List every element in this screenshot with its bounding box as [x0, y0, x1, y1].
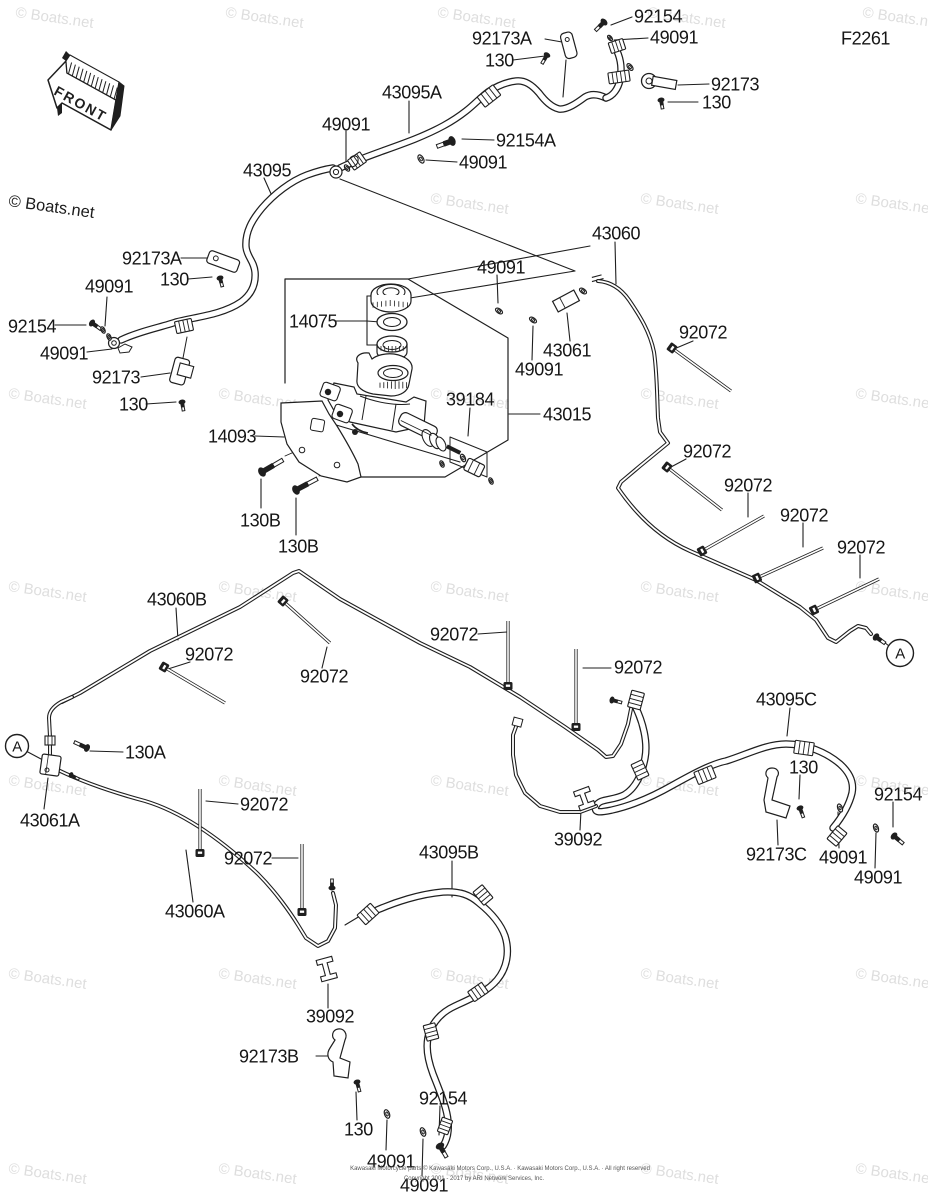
svg-text:43060: 43060	[592, 224, 640, 244]
svg-text:130B: 130B	[240, 511, 281, 531]
svg-text:© Boats.net: © Boats.net	[854, 1160, 928, 1188]
svg-text:43095C: 43095C	[756, 690, 817, 710]
svg-text:© Boats.net: © Boats.net	[7, 578, 88, 606]
svg-text:© Boats.net: © Boats.net	[639, 190, 720, 218]
svg-text:92072: 92072	[240, 795, 288, 815]
svg-text:© Boats.net: © Boats.net	[7, 965, 88, 993]
svg-text:© Boats.net: © Boats.net	[14, 4, 95, 32]
svg-text:130: 130	[702, 93, 731, 113]
svg-text:92154: 92154	[634, 7, 682, 27]
svg-text:14093: 14093	[208, 427, 256, 447]
svg-text:130: 130	[160, 270, 189, 290]
svg-text:49091: 49091	[459, 153, 507, 173]
svg-text:43061: 43061	[543, 341, 591, 361]
svg-text:130B: 130B	[278, 537, 319, 557]
svg-text:43060A: 43060A	[165, 902, 225, 922]
svg-text:© Boats.net: © Boats.net	[7, 385, 88, 413]
svg-text:© Boats.net: © Boats.net	[7, 1160, 88, 1188]
svg-text:Copyright 2001 - 2017 by ARI N: Copyright 2001 - 2017 by ARI Network Ser…	[404, 1176, 544, 1182]
svg-text:92173: 92173	[92, 368, 140, 388]
svg-text:130: 130	[344, 1120, 373, 1140]
svg-text:43061A: 43061A	[20, 811, 80, 831]
svg-text:© Boats.net: © Boats.net	[429, 190, 510, 218]
svg-text:92072: 92072	[614, 658, 662, 678]
svg-text:49091: 49091	[650, 28, 698, 48]
svg-text:130: 130	[119, 395, 148, 415]
svg-text:© Boats.net: © Boats.net	[639, 1160, 720, 1188]
svg-text:43015: 43015	[543, 405, 591, 425]
svg-text:39092: 39092	[306, 1007, 354, 1027]
svg-text:© Boats.net: © Boats.net	[639, 385, 720, 413]
svg-text:92154: 92154	[874, 785, 922, 805]
svg-text:© Boats.net: © Boats.net	[854, 965, 928, 993]
svg-text:49091: 49091	[515, 360, 563, 380]
svg-text:© Boats.net: © Boats.net	[224, 4, 305, 32]
svg-text:92072: 92072	[430, 625, 478, 645]
svg-text:92173A: 92173A	[122, 249, 182, 269]
svg-text:A: A	[12, 739, 22, 756]
svg-text:92072: 92072	[300, 667, 348, 687]
svg-text:92173C: 92173C	[746, 845, 807, 865]
svg-text:© Boats.net: © Boats.net	[217, 1160, 298, 1188]
svg-text:92072: 92072	[683, 442, 731, 462]
svg-text:130: 130	[789, 758, 818, 778]
svg-text:43095B: 43095B	[419, 843, 479, 863]
svg-text:49091: 49091	[819, 848, 867, 868]
svg-text:Kawasaki Motorcycle parts © Ka: Kawasaki Motorcycle parts © Kawasaki Mot…	[350, 1165, 650, 1172]
svg-text:49091: 49091	[854, 868, 902, 888]
svg-text:130A: 130A	[125, 743, 166, 763]
svg-text:© Boats.net: © Boats.net	[854, 578, 928, 606]
svg-text:92072: 92072	[224, 849, 272, 869]
svg-text:92173A: 92173A	[472, 29, 532, 49]
svg-text:49091: 49091	[40, 344, 88, 364]
svg-text:92154: 92154	[419, 1089, 467, 1109]
svg-text:© Boats.net: © Boats.net	[7, 192, 96, 222]
svg-text:49091: 49091	[477, 258, 525, 278]
svg-text:92072: 92072	[185, 645, 233, 665]
svg-text:49091: 49091	[322, 115, 370, 135]
svg-text:92072: 92072	[724, 476, 772, 496]
svg-text:© Boats.net: © Boats.net	[429, 772, 510, 800]
svg-text:92072: 92072	[679, 323, 727, 343]
svg-text:© Boats.net: © Boats.net	[854, 385, 928, 413]
svg-text:43095A: 43095A	[382, 83, 442, 103]
svg-text:A: A	[895, 646, 905, 663]
svg-text:© Boats.net: © Boats.net	[639, 578, 720, 606]
svg-text:92154A: 92154A	[496, 131, 556, 151]
svg-text:© Boats.net: © Boats.net	[854, 190, 928, 218]
svg-text:92072: 92072	[780, 506, 828, 526]
svg-text:43095: 43095	[243, 161, 291, 181]
svg-text:39184: 39184	[446, 390, 494, 410]
svg-text:43060B: 43060B	[147, 590, 207, 610]
svg-text:92173: 92173	[711, 75, 759, 95]
svg-text:14075: 14075	[289, 312, 337, 332]
svg-text:130: 130	[485, 51, 514, 71]
svg-text:92173B: 92173B	[239, 1047, 299, 1067]
svg-text:49091: 49091	[85, 277, 133, 297]
svg-text:92154: 92154	[8, 317, 56, 337]
svg-text:© Boats.net: © Boats.net	[217, 965, 298, 993]
svg-text:© Boats.net: © Boats.net	[639, 965, 720, 993]
svg-text:F2261: F2261	[841, 29, 890, 49]
svg-text:92072: 92072	[837, 538, 885, 558]
svg-text:© Boats.net: © Boats.net	[429, 578, 510, 606]
svg-text:39092: 39092	[554, 830, 602, 850]
